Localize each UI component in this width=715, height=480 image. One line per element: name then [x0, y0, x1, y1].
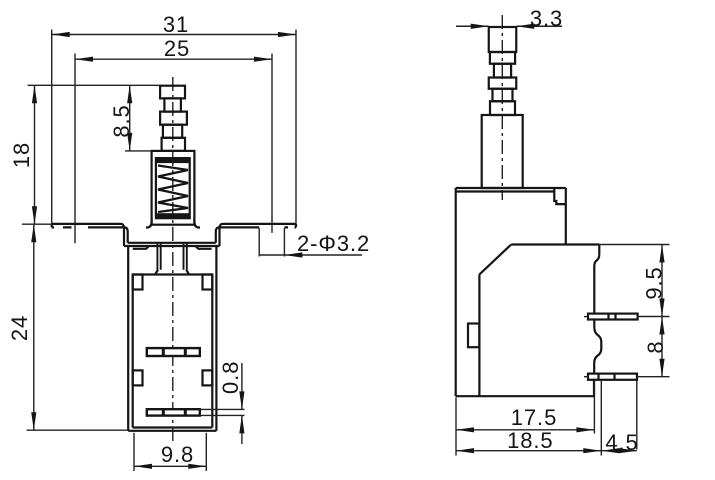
svg-text:8: 8 [643, 340, 668, 353]
svg-text:17.5: 17.5 [511, 405, 557, 430]
svg-text:2-Φ3.2: 2-Φ3.2 [297, 231, 370, 256]
svg-text:4.5: 4.5 [605, 430, 638, 455]
svg-text:24: 24 [7, 315, 32, 341]
svg-text:0.8: 0.8 [218, 361, 243, 394]
svg-text:8.5: 8.5 [109, 104, 134, 137]
svg-text:9.5: 9.5 [642, 266, 667, 299]
svg-text:18.5: 18.5 [507, 428, 553, 453]
svg-text:3.3: 3.3 [530, 6, 563, 31]
svg-text:31: 31 [163, 12, 189, 37]
svg-text:9.8: 9.8 [161, 442, 194, 467]
svg-text:18: 18 [9, 142, 34, 168]
svg-text:25: 25 [164, 36, 190, 61]
